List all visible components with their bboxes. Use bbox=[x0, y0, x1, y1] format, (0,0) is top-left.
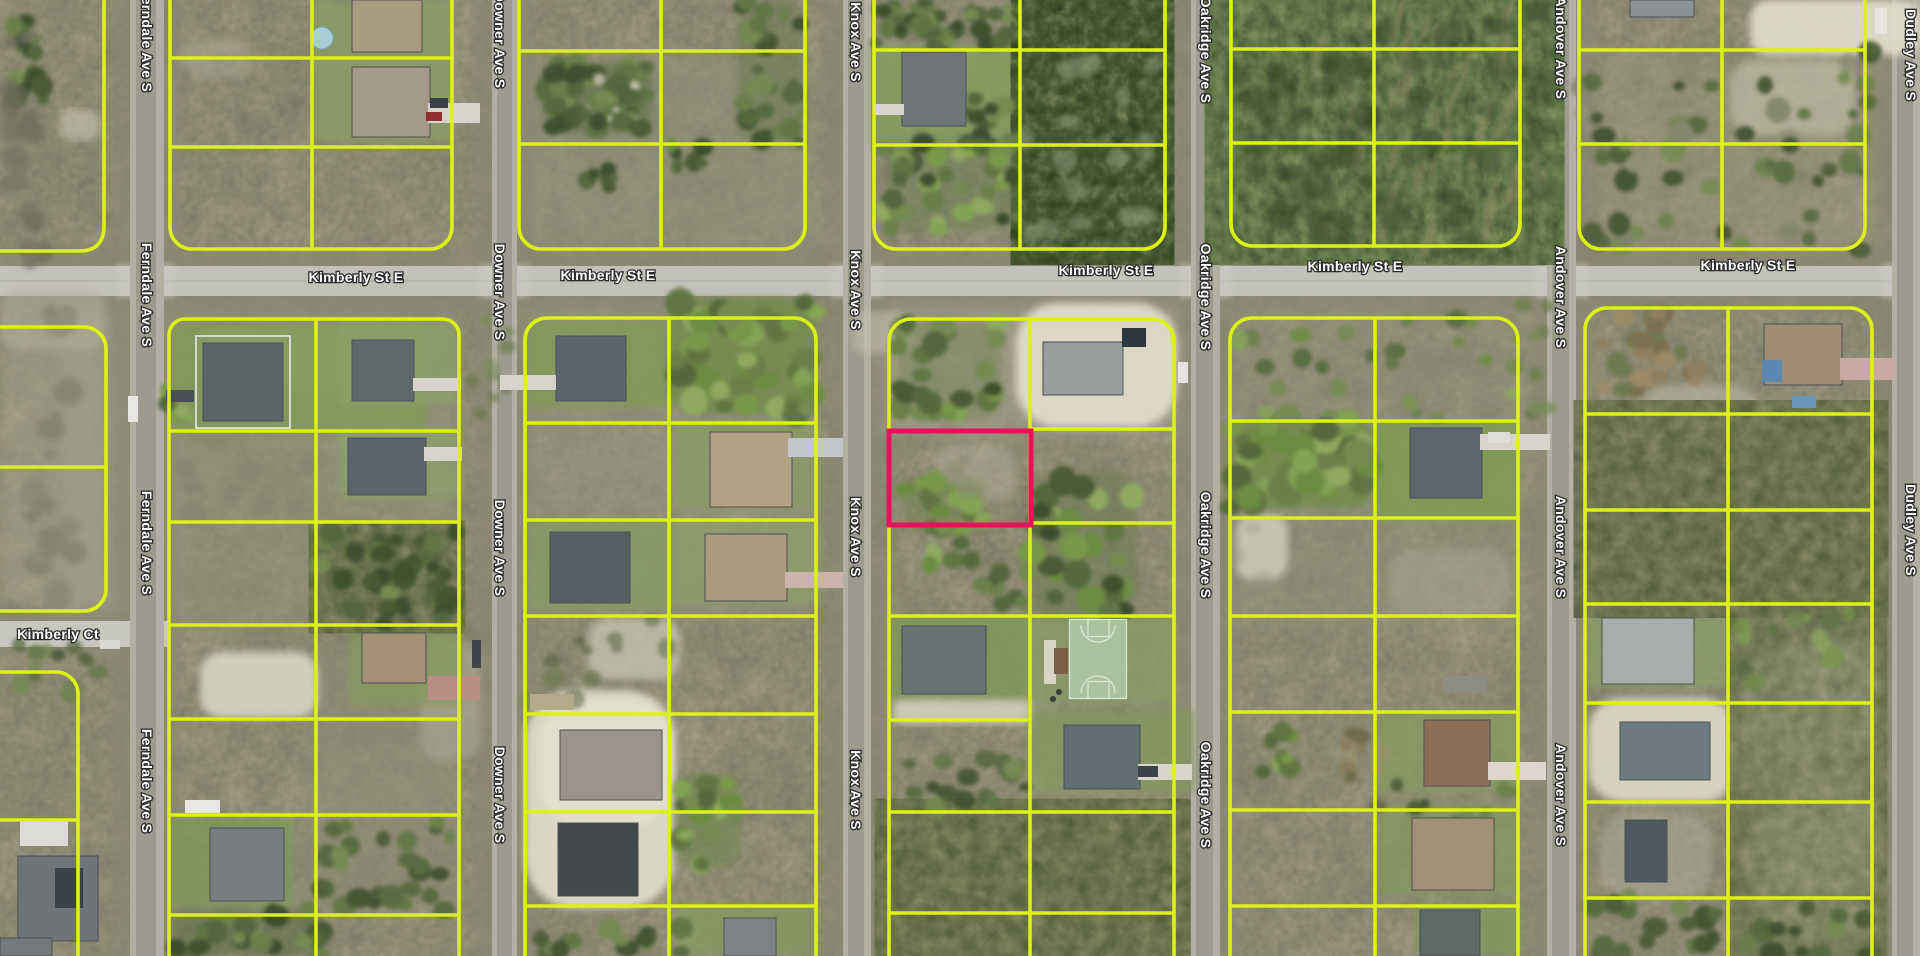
svg-text:Kimberly St E: Kimberly St E bbox=[1059, 262, 1154, 278]
svg-text:Ferndale Ave S: Ferndale Ave S bbox=[139, 243, 155, 347]
svg-text:Ferndale Ave S: Ferndale Ave S bbox=[139, 491, 155, 595]
svg-text:Kimberly St E: Kimberly St E bbox=[1701, 257, 1796, 273]
svg-text:Knox Ave S: Knox Ave S bbox=[848, 250, 864, 330]
svg-text:Kimberly St E: Kimberly St E bbox=[561, 267, 656, 283]
svg-text:Knox Ave S: Knox Ave S bbox=[848, 2, 864, 82]
svg-text:Dudley Ave S: Dudley Ave S bbox=[1903, 9, 1919, 101]
svg-text:Dudley Ave S: Dudley Ave S bbox=[1903, 484, 1919, 576]
svg-text:Knox Ave S: Knox Ave S bbox=[848, 497, 864, 577]
svg-text:Oakridge Ave S: Oakridge Ave S bbox=[1198, 742, 1214, 849]
svg-text:Andover Ave S: Andover Ave S bbox=[1553, 246, 1569, 348]
svg-text:Downer Ave S: Downer Ave S bbox=[492, 0, 508, 88]
svg-text:Downer Ave S: Downer Ave S bbox=[492, 747, 508, 844]
svg-text:Kimberly Ct: Kimberly Ct bbox=[17, 626, 99, 642]
svg-text:Kimberly St E: Kimberly St E bbox=[1308, 258, 1403, 274]
svg-text:Oakridge Ave S: Oakridge Ave S bbox=[1198, 492, 1214, 599]
svg-text:Downer Ave S: Downer Ave S bbox=[492, 500, 508, 597]
svg-text:Andover Ave S: Andover Ave S bbox=[1553, 744, 1569, 846]
svg-text:Kimberly St E: Kimberly St E bbox=[309, 269, 404, 285]
svg-text:Oakridge Ave S: Oakridge Ave S bbox=[1198, 244, 1214, 351]
svg-text:Knox Ave S: Knox Ave S bbox=[848, 750, 864, 830]
svg-text:Downer Ave S: Downer Ave S bbox=[492, 244, 508, 341]
svg-text:Oakridge Ave S: Oakridge Ave S bbox=[1198, 0, 1214, 103]
svg-text:Ferndale Ave S: Ferndale Ave S bbox=[139, 729, 155, 833]
svg-text:Andover Ave S: Andover Ave S bbox=[1553, 0, 1569, 99]
svg-text:Andover Ave S: Andover Ave S bbox=[1553, 496, 1569, 598]
svg-text:Ferndale Ave S: Ferndale Ave S bbox=[139, 0, 155, 92]
